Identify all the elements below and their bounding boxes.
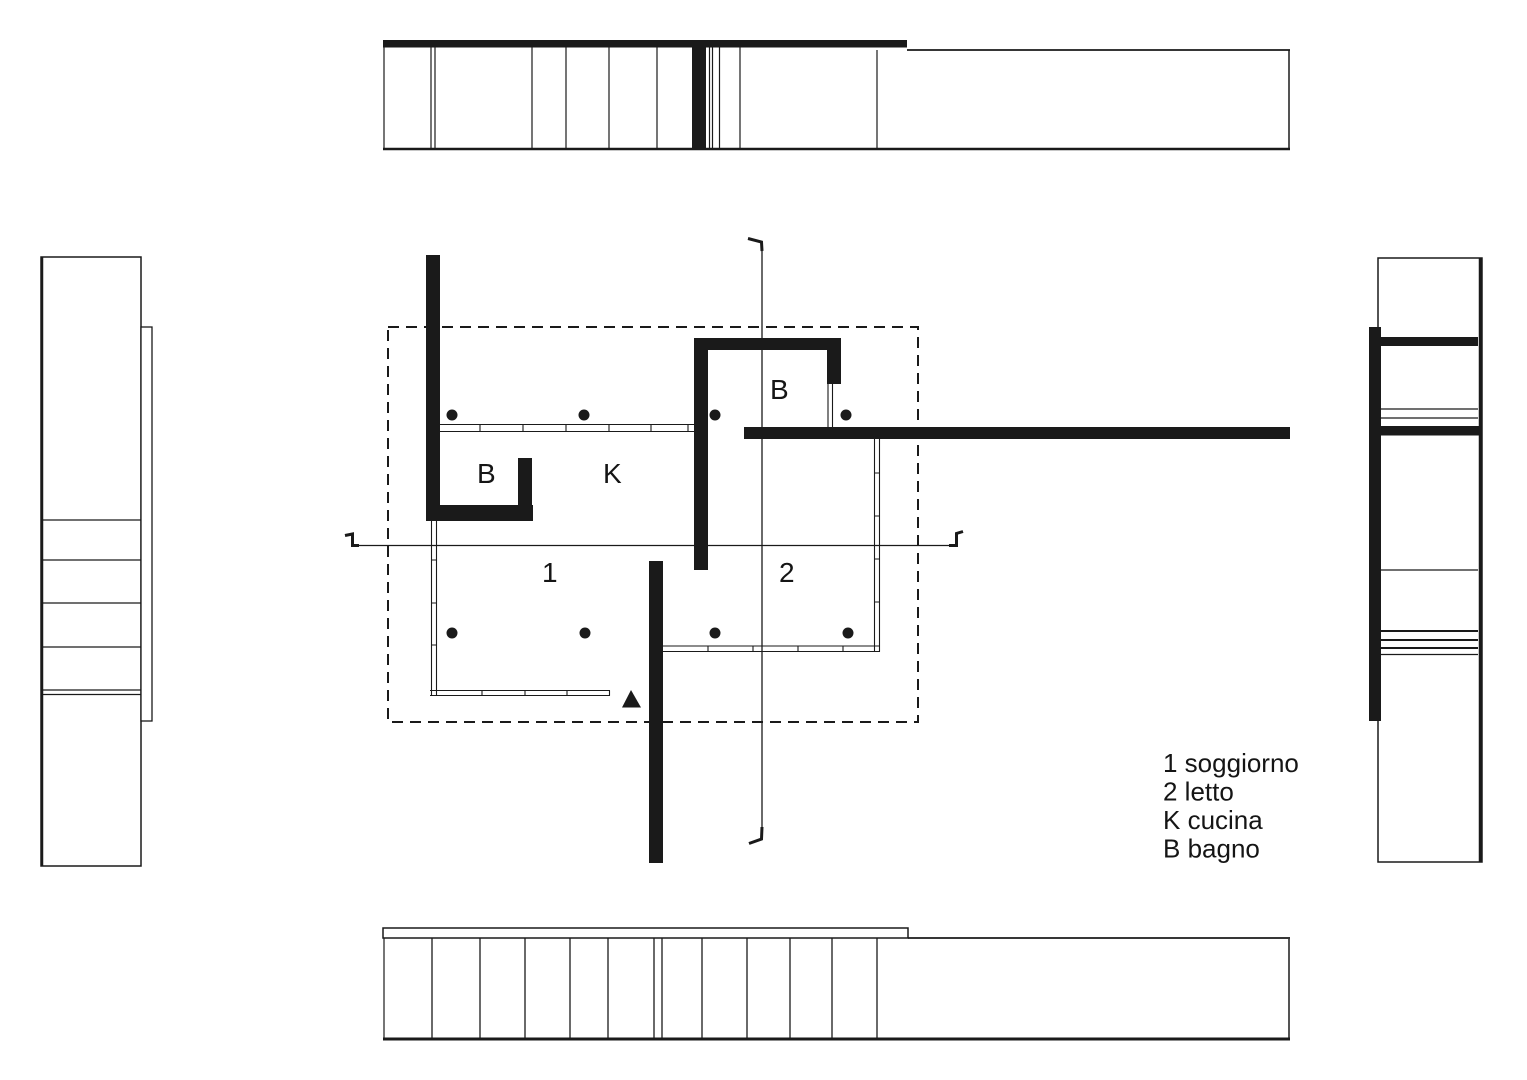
column-dot-icon [843,628,854,639]
section-hook-bottom-icon [749,827,762,844]
column-dot-icon [579,410,590,421]
entrance-triangle-icon [622,690,641,708]
architectural-drawing: B B K 1 2 1 soggiorno 2 letto K cucina B… [0,0,1527,1080]
room-label-bedroom: 2 [779,557,795,588]
floor-plan: B B K 1 2 [345,239,1290,864]
right-elevation-body [1378,258,1482,862]
bottom-elevation [383,928,1290,1039]
top-elevation-core-post [692,47,706,148]
room-label-kitchen: K [603,458,622,489]
right-elevation-upper-band [1381,337,1478,346]
left-elevation [41,257,152,866]
room-label-bath-lower: B [477,458,496,489]
legend: 1 soggiorno 2 letto K cucina B bagno [1163,748,1299,864]
column-dot-icon [841,410,852,421]
top-elevation-roof-slab [383,40,907,48]
column-dot-icon [710,628,721,639]
room-label-living: 1 [542,557,558,588]
column-dot-icon [580,628,591,639]
room-label-bath-upper: B [770,374,789,405]
legend-item-cucina: K cucina [1163,805,1263,835]
right-elevation-floor-band [1378,426,1482,436]
column-dot-icon [710,410,721,421]
legend-item-bagno: B bagno [1163,834,1260,864]
left-elevation-wing-strip [141,327,152,721]
top-elevation-mullions [431,48,877,149]
column-dot-icon [447,410,458,421]
legend-item-letto: 2 letto [1163,777,1234,807]
bottom-elevation-roof-slab [383,928,908,938]
bottom-elevation-mullions [432,938,877,1038]
top-elevation [383,40,1290,149]
section-hook-right-icon [949,532,963,546]
right-elevation-cut-wall [1369,327,1381,721]
section-hook-top-icon [748,239,762,252]
column-dot-icon [447,628,458,639]
section-hook-left-icon [345,534,359,546]
legend-item-soggiorno: 1 soggiorno [1163,748,1299,778]
left-elevation-body [41,257,141,866]
right-elevation [1369,258,1482,862]
